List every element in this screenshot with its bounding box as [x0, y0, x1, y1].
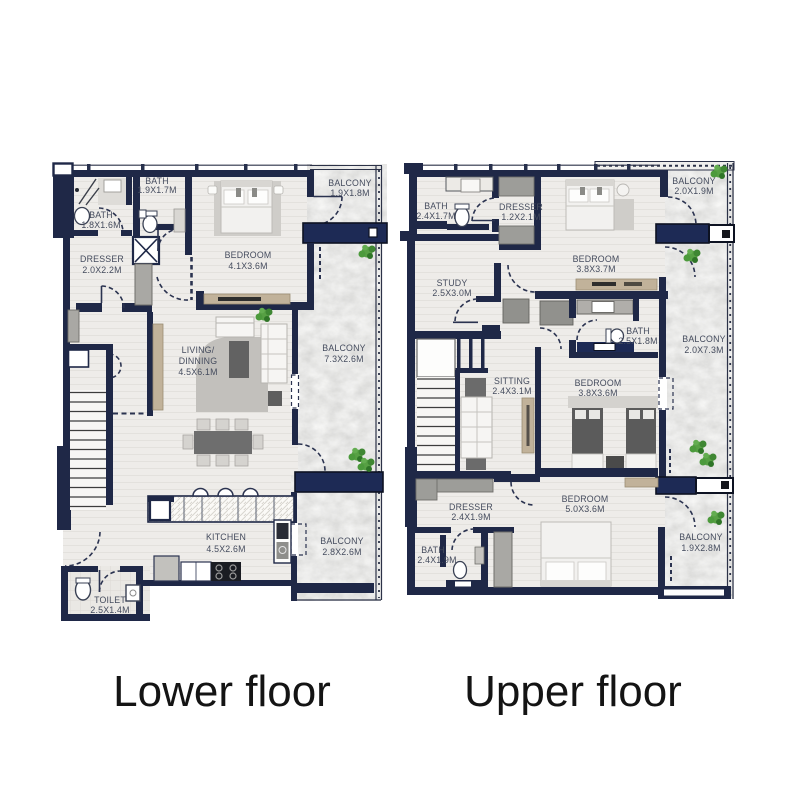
- svg-text:BALCONY: BALCONY: [328, 178, 371, 188]
- svg-text:TOILET: TOILET: [94, 595, 126, 605]
- svg-text:2.0X2.2M: 2.0X2.2M: [82, 265, 121, 275]
- svg-text:BEDROOM: BEDROOM: [573, 254, 620, 264]
- svg-text:1.9X1.7M: 1.9X1.7M: [137, 185, 176, 195]
- svg-text:2.5X1.8M: 2.5X1.8M: [618, 336, 657, 346]
- svg-text:BEDROOM: BEDROOM: [225, 250, 272, 260]
- svg-text:BATH: BATH: [421, 545, 445, 555]
- svg-text:BATH: BATH: [89, 210, 113, 220]
- svg-text:BATH: BATH: [626, 326, 650, 336]
- svg-text:2.4X1.9M: 2.4X1.9M: [417, 555, 456, 565]
- svg-text:2.4X1.9M: 2.4X1.9M: [451, 512, 490, 522]
- svg-text:7.3X2.6M: 7.3X2.6M: [324, 354, 363, 364]
- svg-text:SITTING: SITTING: [494, 376, 530, 386]
- svg-text:DINNING: DINNING: [179, 356, 218, 366]
- svg-text:BEDROOM: BEDROOM: [575, 378, 622, 388]
- svg-text:2.0X7.3M: 2.0X7.3M: [684, 345, 723, 355]
- svg-text:DRESSER: DRESSER: [499, 202, 543, 212]
- svg-text:4.1X3.6M: 4.1X3.6M: [228, 261, 267, 271]
- svg-text:4.5X6.1M: 4.5X6.1M: [178, 367, 217, 377]
- svg-text:2.8X2.6M: 2.8X2.6M: [322, 547, 361, 557]
- svg-text:1.2X2.1M: 1.2X2.1M: [501, 212, 540, 222]
- svg-text:BATH: BATH: [424, 201, 448, 211]
- svg-text:BALCONY: BALCONY: [679, 532, 722, 542]
- svg-text:2.4X3.1M: 2.4X3.1M: [492, 386, 531, 396]
- svg-text:4.5X2.6M: 4.5X2.6M: [206, 544, 245, 554]
- svg-text:Upper floor: Upper floor: [464, 667, 682, 716]
- svg-text:5.0X3.6M: 5.0X3.6M: [565, 504, 604, 514]
- svg-text:BEDROOM: BEDROOM: [562, 494, 609, 504]
- svg-text:BALCONY: BALCONY: [320, 536, 363, 546]
- svg-text:2.5X1.4M: 2.5X1.4M: [90, 605, 129, 615]
- svg-text:1.9X2.8M: 1.9X2.8M: [681, 543, 720, 553]
- svg-text:DRESSER: DRESSER: [449, 502, 493, 512]
- svg-text:BALCONY: BALCONY: [682, 334, 725, 344]
- svg-text:Lower floor: Lower floor: [113, 667, 331, 716]
- svg-text:STUDY: STUDY: [437, 278, 468, 288]
- svg-text:1.9X1.8M: 1.9X1.8M: [330, 188, 369, 198]
- svg-text:KITCHEN: KITCHEN: [206, 532, 246, 542]
- svg-text:BALCONY: BALCONY: [322, 343, 365, 353]
- svg-text:3.8X3.6M: 3.8X3.6M: [578, 388, 617, 398]
- svg-text:1.8X1.6M: 1.8X1.6M: [81, 220, 120, 230]
- svg-text:2.4X1.7M: 2.4X1.7M: [416, 211, 455, 221]
- svg-text:2.0X1.9M: 2.0X1.9M: [674, 186, 713, 196]
- svg-text:BALCONY: BALCONY: [672, 176, 715, 186]
- svg-text:DRESSER: DRESSER: [80, 254, 124, 264]
- svg-text:LIVING/: LIVING/: [182, 345, 215, 355]
- svg-text:2.5X3.0M: 2.5X3.0M: [432, 288, 471, 298]
- svg-text:3.8X3.7M: 3.8X3.7M: [576, 264, 615, 274]
